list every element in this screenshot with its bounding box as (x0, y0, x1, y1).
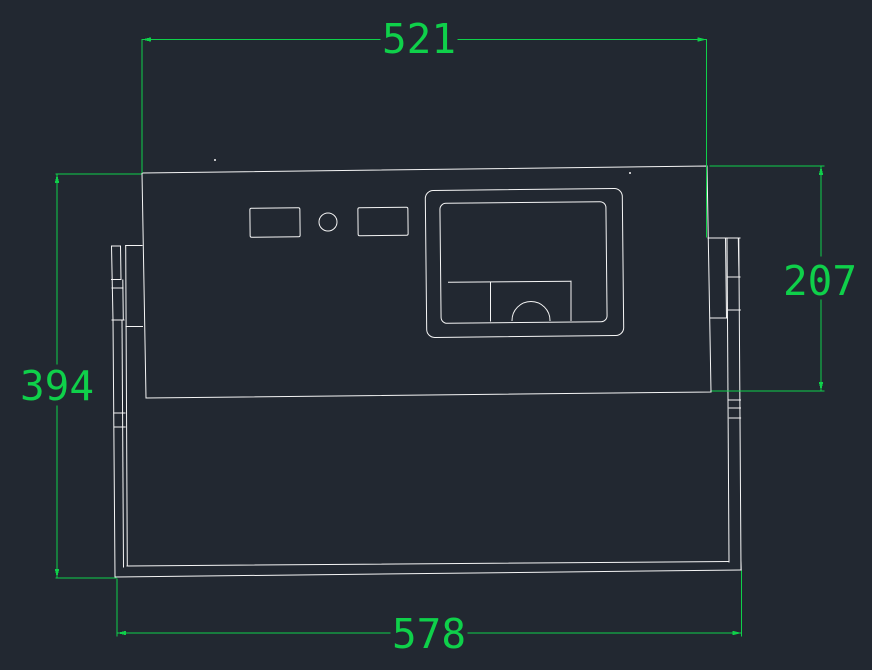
dimension-entities: 521 207 (20, 15, 857, 658)
speck (214, 159, 216, 161)
mount-bracket-base[interactable] (115, 562, 741, 578)
dimension-right-height[interactable]: 207 (710, 166, 857, 391)
bracket-line[interactable] (726, 238, 727, 318)
lens-shelf-line[interactable] (449, 281, 572, 282)
device-geometry-layer (112, 159, 742, 577)
mount-bracket-left-arm[interactable] (112, 246, 143, 578)
arrowhead-left (117, 631, 126, 635)
dimension-layer: 521 207 (20, 15, 857, 658)
dimension-value[interactable]: 394 (20, 362, 94, 410)
arrowhead-left (142, 37, 151, 41)
right-arm-outer-edge[interactable] (739, 238, 741, 570)
bracket-line[interactable] (123, 280, 124, 320)
dimension-bottom-width[interactable]: 578 (117, 571, 742, 658)
lens-semicircle-notch[interactable] (512, 302, 550, 321)
cad-viewport[interactable]: 521 207 (0, 0, 872, 670)
speck (629, 172, 631, 174)
drawing-canvas[interactable]: 521 207 (0, 0, 872, 670)
dimension-value[interactable]: 521 (382, 15, 456, 63)
mount-bracket-right-arm[interactable] (708, 238, 741, 570)
base-outer-bottom-edge[interactable] (115, 570, 741, 577)
arrowhead-up (819, 166, 823, 175)
bracket-line[interactable] (121, 246, 122, 280)
arrowhead-up (55, 174, 59, 183)
arrowhead-right (698, 37, 707, 41)
dimension-value[interactable]: 578 (392, 610, 466, 658)
arrowhead-down (819, 382, 823, 391)
indicator-circle[interactable] (319, 213, 337, 231)
port-rect-left[interactable] (250, 208, 300, 238)
left-arm-outer-edge[interactable] (113, 320, 115, 577)
lens-recess-outer[interactable] (425, 188, 624, 337)
base-inner-bottom-edge[interactable] (127, 562, 729, 567)
dimension-top-width[interactable]: 521 (142, 15, 707, 237)
bracket-line[interactable] (112, 246, 114, 320)
left-arm-inner-edge[interactable] (126, 246, 128, 567)
arrowhead-down (55, 569, 59, 578)
lens-recess-inner[interactable] (440, 202, 607, 324)
lens-carriage[interactable] (449, 281, 572, 321)
dimension-value[interactable]: 207 (783, 257, 857, 305)
left-arm-middle-edge[interactable] (122, 320, 124, 567)
arrowhead-right (733, 631, 742, 635)
port-rect-right[interactable] (358, 207, 408, 236)
